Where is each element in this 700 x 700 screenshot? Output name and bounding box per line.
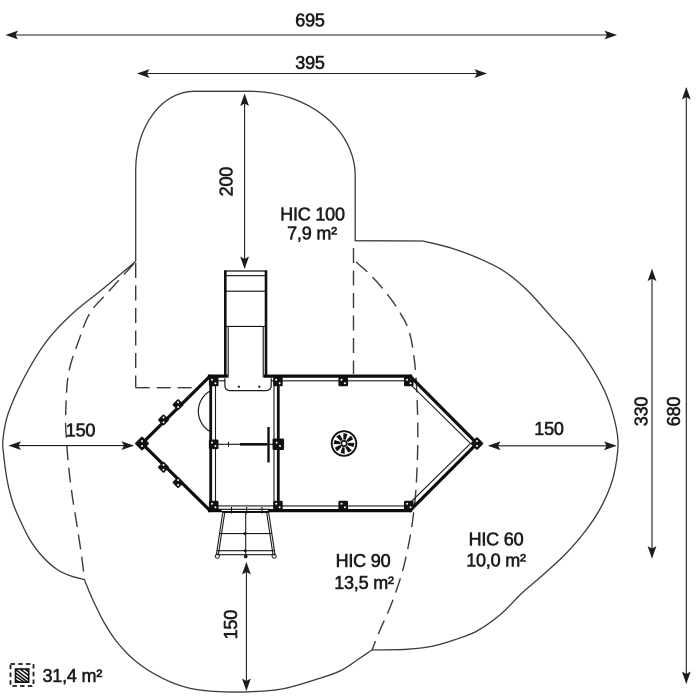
svg-text:HIC 100: HIC 100 [280,204,345,224]
svg-text:HIC 90: HIC 90 [336,551,391,571]
svg-text:695: 695 [295,11,325,31]
svg-text:395: 395 [295,53,325,73]
svg-text:10,0 m²: 10,0 m² [466,551,526,571]
svg-text:150: 150 [221,610,241,640]
svg-text:31,4 m²: 31,4 m² [43,666,103,686]
svg-text:150: 150 [66,420,96,440]
svg-text:150: 150 [534,419,564,439]
svg-text:13,5 m²: 13,5 m² [334,573,394,593]
svg-text:7,9 m²: 7,9 m² [287,223,337,243]
svg-text:680: 680 [664,397,684,427]
svg-text:200: 200 [217,167,237,197]
svg-text:HIC 60: HIC 60 [469,530,524,550]
svg-text:330: 330 [632,397,652,427]
